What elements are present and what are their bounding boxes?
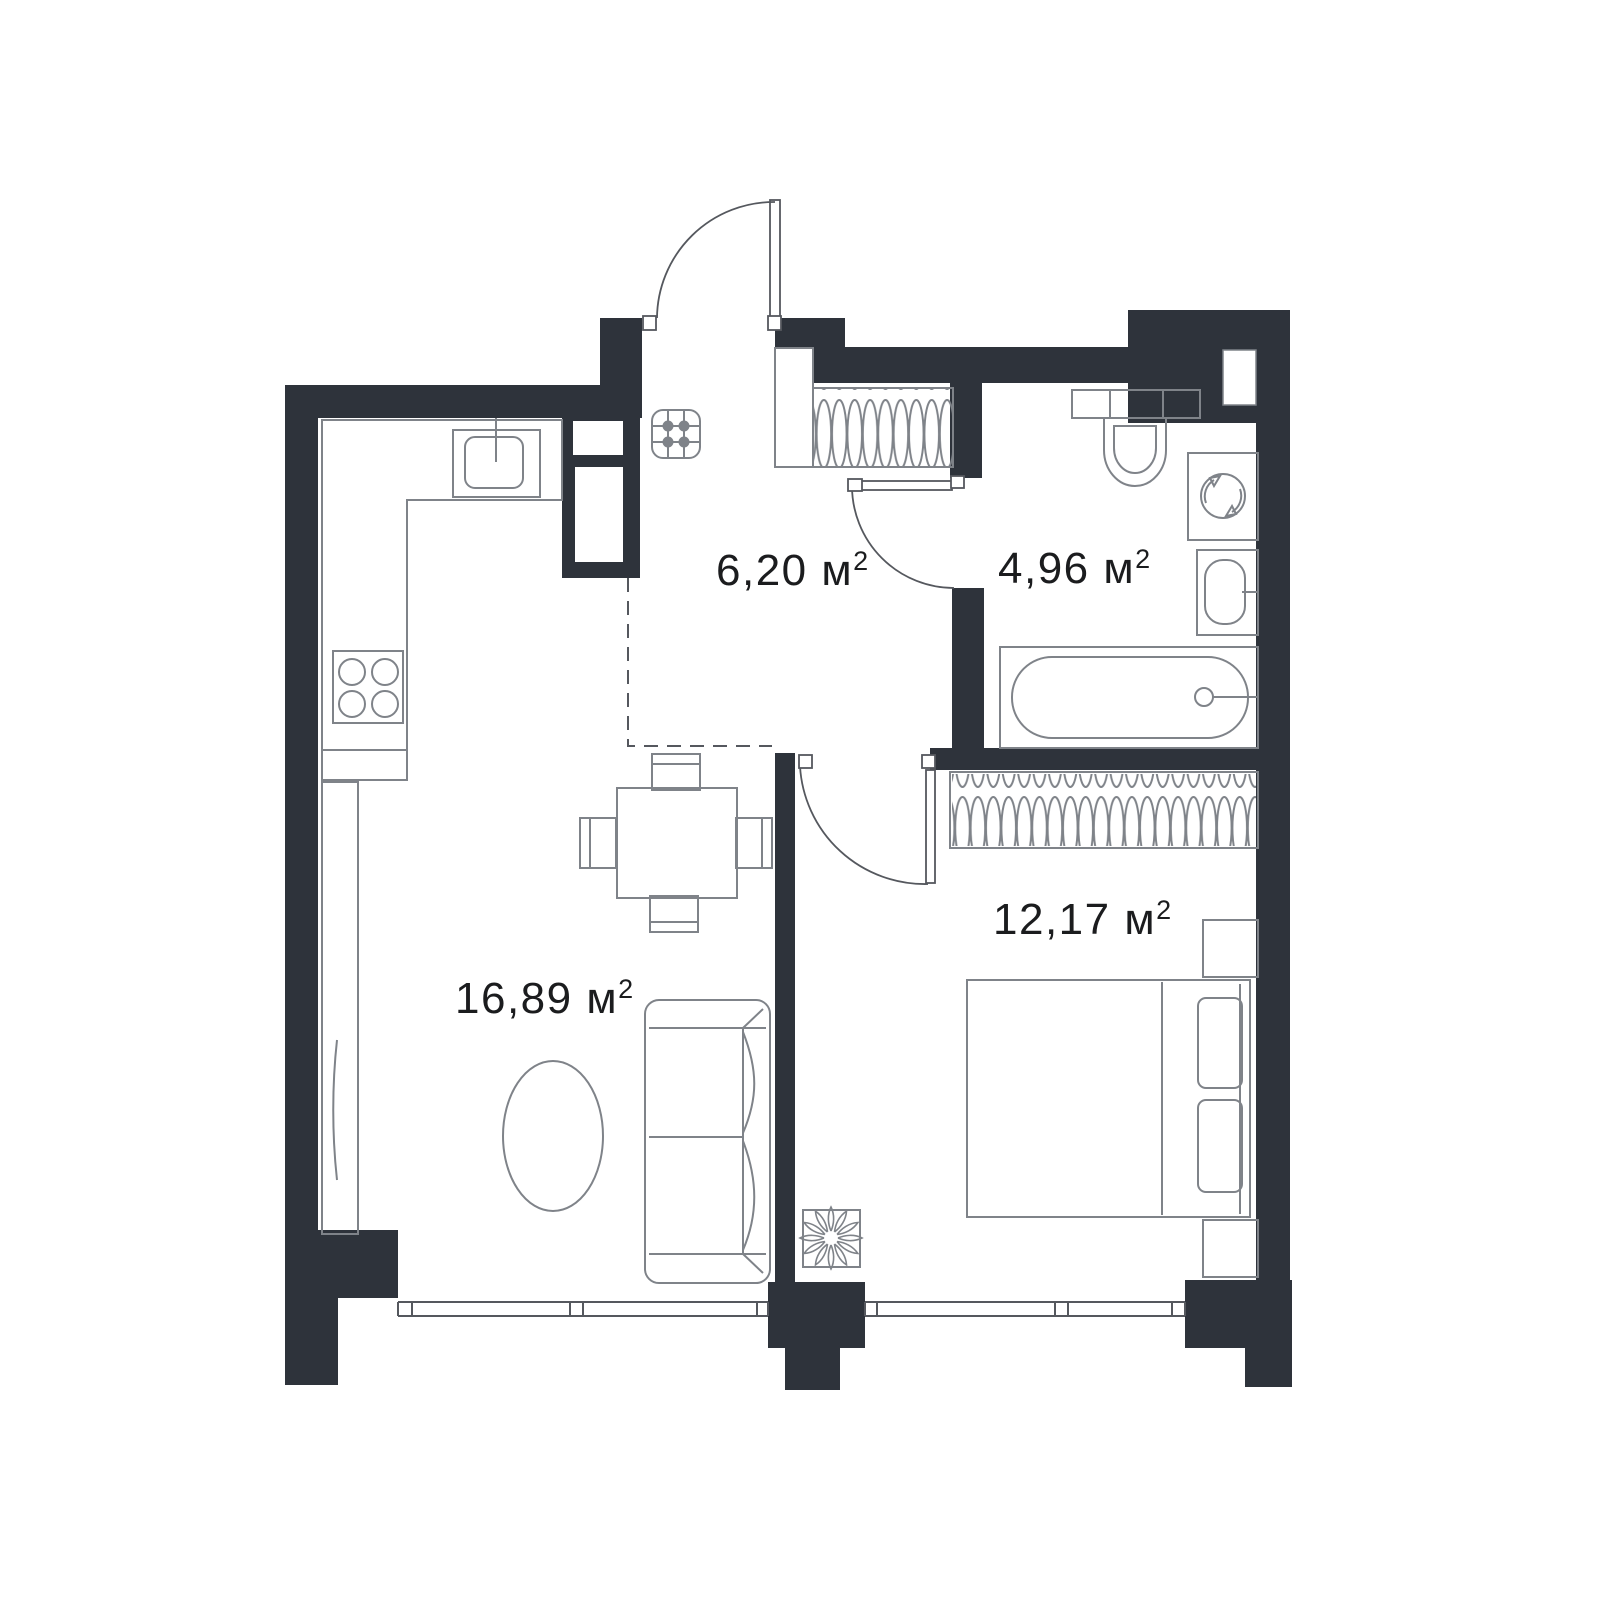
entrance-door-jamb-left [643,316,656,330]
bedroom-door-jamb-left [799,755,812,768]
wall-right-outer [1256,350,1290,1292]
niche-shaft-top-right [1223,350,1256,405]
bedroom-door-jamb-right [922,755,935,768]
wall-bedroom-top [930,748,1290,770]
entrance-door-leaf [770,200,780,318]
bathroom-door-leaf [852,481,952,490]
wall-living-bedroom [775,753,795,1302]
wall-bath-left-upper [950,383,982,478]
room-label-living-kitchen: 16,89 м2 [455,974,635,1023]
wall-shaft-bottom [1128,405,1258,423]
wall-right-of-entrance [775,318,845,347]
room-label-bedroom: 12,17 м2 [993,895,1173,944]
wall-entrance-left-jamb [600,318,642,418]
bathroom-door-jamb-top [951,476,964,488]
bedroom-wardrobe-hangers [952,774,1256,846]
bathroom-door-stop [848,479,862,491]
entrance-door-jamb-right [768,316,781,330]
wall-top-right [1128,310,1290,350]
room-label-hallway: 6,20 м2 [716,546,870,595]
niche-lower [575,467,623,562]
bedroom-wardrobe [950,772,1258,848]
apartment-floor-plan: 6,20 м2 4,96 м2 12,17 м2 16,89 м2 [0,0,1600,1600]
wall-top-kitchen [285,385,605,418]
wall-left [285,385,318,1230]
room-label-bathroom: 4,96 м2 [998,544,1152,593]
bedroom-door-leaf [926,770,935,883]
wall-hall-top-band [812,347,1132,383]
wall-shaft-left [1128,347,1223,407]
niche-upper [573,421,623,455]
wall-bath-left-lower [952,588,984,750]
hallway-wardrobe-hangers [814,388,952,467]
